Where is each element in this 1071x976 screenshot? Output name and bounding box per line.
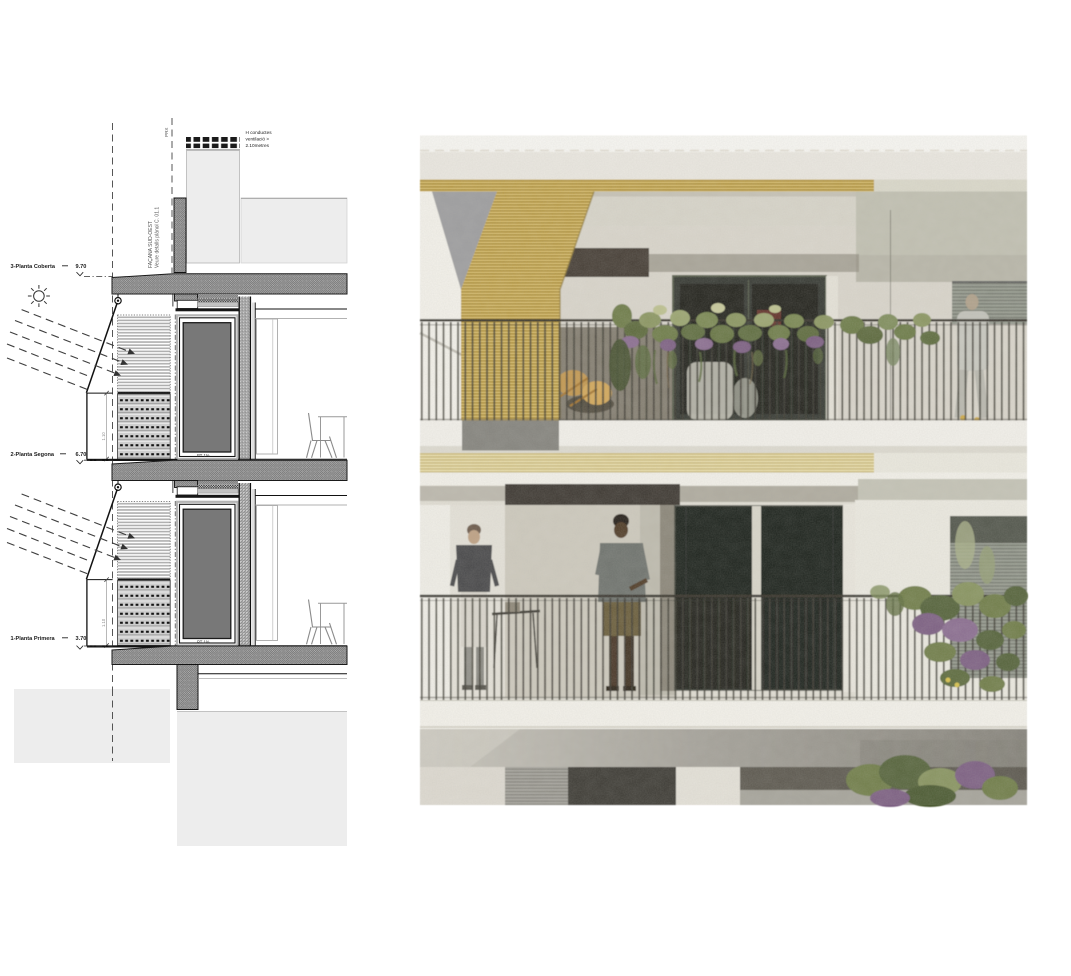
svg-text:3-Planta Coberta: 3-Planta Coberta bbox=[11, 264, 56, 270]
svg-text:H conductes: H conductes bbox=[246, 130, 273, 135]
svg-text:2-Planta Segona: 2-Planta Segona bbox=[11, 452, 55, 458]
svg-text:2.10metres: 2.10metres bbox=[246, 143, 270, 148]
svg-text:1-Planta Primera: 1-Planta Primera bbox=[11, 636, 56, 642]
svg-text:9.70: 9.70 bbox=[76, 264, 87, 270]
svg-text:6.70: 6.70 bbox=[76, 452, 87, 458]
svg-text:PRX: PRX bbox=[164, 128, 169, 137]
svg-text:3.70: 3.70 bbox=[76, 636, 87, 642]
svg-text:ventilació >: ventilació > bbox=[246, 137, 270, 142]
svg-text:FAÇANA SUD-OESTVeure detalls p: FAÇANA SUD-OESTVeure detalls plànol C. 0… bbox=[148, 207, 161, 268]
